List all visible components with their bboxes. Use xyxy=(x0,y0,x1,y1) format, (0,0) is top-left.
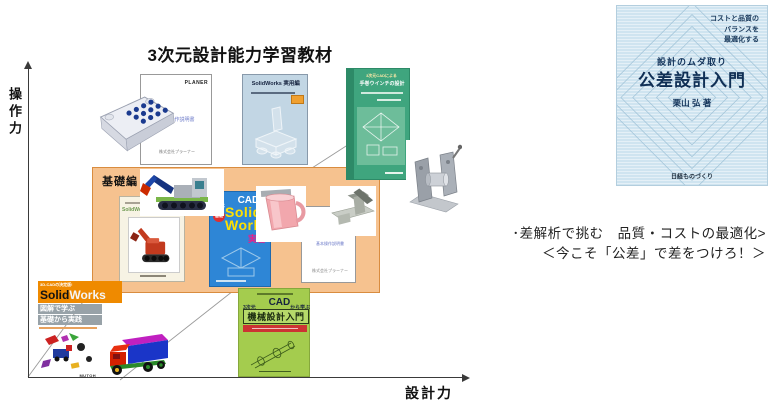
mutoh-caption-bar xyxy=(39,327,97,329)
sw-practical-subtitle-bar xyxy=(251,92,295,94)
y-axis-label: 操作力 xyxy=(5,87,24,138)
keypad-device-image xyxy=(89,91,181,158)
book-solidworks-practical: SolidWorks 実用編 xyxy=(242,74,308,165)
mech-footer-bar xyxy=(259,371,291,373)
page-title: 3次元設計能力学習教材 xyxy=(138,41,342,66)
book-tolerance-design: コストと品質の バランスを 最適化する 設計のムダ取り 公差設計入門 栗山 弘 … xyxy=(616,5,768,186)
caption-line-2: ＜今こそ「公差」で差をつけろ！＞ xyxy=(406,244,766,264)
winch-footer-bar xyxy=(385,172,403,174)
tolerance-publisher-area: 日経ものづくり xyxy=(617,173,767,181)
book-machine-design: 3次元CADから学ぶ 機械設計入門 xyxy=(238,288,310,377)
sw-practical-cover-art xyxy=(246,103,306,161)
sw-hen-image-panel xyxy=(128,217,180,273)
tolerance-tagline-1: コストと品質の xyxy=(710,16,759,23)
excavator-model-image xyxy=(140,169,224,216)
mech-cover-art xyxy=(247,335,303,369)
winch-header-area: 3次元CADによる xyxy=(354,73,409,80)
grey-machine-model-image xyxy=(330,186,376,236)
tolerance-author: 栗山 弘 著 xyxy=(617,97,767,109)
winch-title: 手巻ウインチの設計 xyxy=(359,82,404,87)
y-axis-arrow-icon xyxy=(24,61,32,69)
sw-hen-footer-bar xyxy=(140,275,166,277)
mutoh-band2-label: 基礎から実践 xyxy=(40,316,82,323)
mech-header-big: CAD xyxy=(269,297,291,308)
mutoh-footer-area: MUTOH xyxy=(76,373,100,379)
mutoh-footer: MUTOH xyxy=(80,374,97,378)
tolerance-publisher: 日経ものづくり xyxy=(671,174,713,180)
mutoh-title-works: Works xyxy=(69,288,105,302)
mutoh-header: 3D-CADの決定版! xyxy=(40,283,72,287)
winch-credit-bar xyxy=(377,99,401,101)
winch-book-spine xyxy=(347,69,354,179)
tolerance-title: 公差設計入門 xyxy=(617,66,767,91)
cad-master-footer-bar xyxy=(216,280,246,282)
caption-block: ･差解析で挑む 品質・コストの最適化> ＜今こそ「公差」で差をつけろ！＞ xyxy=(406,224,766,264)
manual2-title: 基本操作説明書 xyxy=(316,242,344,246)
x-axis-arrow-icon xyxy=(462,374,470,382)
basics-box-label: 基礎編 xyxy=(102,173,138,189)
planer-footer: 株式会社プラーナー xyxy=(159,150,195,154)
planer-brand: PLANER xyxy=(184,80,208,85)
caption-line-1: ･差解析で挑む 品質・コストの最適化> xyxy=(406,224,766,244)
manual2-title-area: 基本操作説明書 xyxy=(302,240,357,248)
sw-practical-title: SolidWorks 実用編 xyxy=(252,82,300,88)
figure-canvas: 操作力 設計力 3次元設計能力学習教材 PLANER 基本操作説明書 株式会社プ… xyxy=(0,0,770,402)
mutoh-band1-label: 図解で学ぶ xyxy=(40,305,75,312)
mutoh-band1: 図解で学ぶ xyxy=(38,304,102,314)
toy-truck-image xyxy=(104,332,172,376)
mech-red-band xyxy=(243,325,307,332)
manual2-footer: 株式会社プラーナー xyxy=(312,269,348,273)
tolerance-tagline-2: バランスを xyxy=(710,26,759,33)
tolerance-tagline: コストと品質の バランスを 最適化する xyxy=(689,14,759,46)
manual2-footer-area: 株式会社プラーナー xyxy=(302,268,357,275)
cad-master-cover-art xyxy=(214,244,268,280)
mech-title: 機械設計入門 xyxy=(247,310,304,323)
mutoh-header-block: 3D-CADの決定版! SolidWorks xyxy=(38,281,122,303)
toy-parts-image xyxy=(38,331,102,375)
book-winch-design: 3次元CADによる 手巻ウインチの設計 xyxy=(346,68,410,180)
y-axis-line xyxy=(28,68,29,378)
sw-practical-title-area: SolidWorks 実用編 xyxy=(243,80,309,89)
winch-header: 3次元CADによる xyxy=(366,74,397,78)
mutoh-title-solid: Solid xyxy=(40,288,69,302)
mech-title-box: 機械設計入門 xyxy=(243,309,309,324)
x-axis-label: 設計力 xyxy=(405,383,453,402)
pink-cup-model-image xyxy=(256,186,306,242)
winch-subtitle-bar xyxy=(361,92,403,94)
winch-cover-art xyxy=(357,107,405,165)
planer-brand-area: PLANER xyxy=(158,79,208,87)
mutoh-band2: 基礎から実践 xyxy=(38,315,102,325)
mech-red-band-bar xyxy=(252,328,298,330)
tolerance-tagline-3: 最適化する xyxy=(710,37,759,44)
red-excavator-toy-image xyxy=(130,219,178,271)
winch-title-area: 手巻ウインチの設計 xyxy=(354,80,409,89)
winch-photo-image xyxy=(406,140,462,218)
mech-topline-bar xyxy=(257,293,293,295)
mutoh-title: SolidWorks xyxy=(40,288,106,302)
